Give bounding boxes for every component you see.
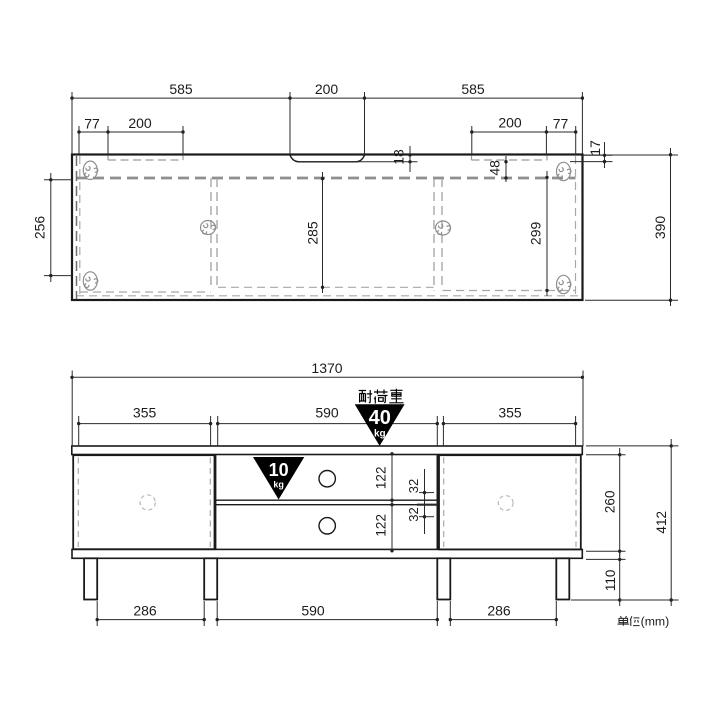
svg-text:1370: 1370 [311,360,342,376]
svg-text:256: 256 [32,216,48,240]
svg-text:355: 355 [498,404,522,420]
svg-text:355: 355 [133,404,157,420]
svg-text:110: 110 [603,570,618,592]
svg-text:200: 200 [315,81,339,97]
svg-text:590: 590 [315,405,339,421]
svg-text:285: 285 [305,221,321,245]
svg-text:412: 412 [654,511,669,534]
svg-text:200: 200 [128,115,152,131]
svg-text:77: 77 [84,116,100,132]
svg-text:122: 122 [374,514,389,537]
svg-text:kg: kg [273,480,284,490]
svg-text:10: 10 [269,460,289,480]
svg-text:286: 286 [487,602,511,618]
svg-text:200: 200 [498,115,522,131]
svg-text:32: 32 [406,479,421,493]
svg-text:18: 18 [391,149,407,165]
svg-text:40: 40 [369,407,391,429]
svg-text:590: 590 [301,602,325,618]
svg-text:(mm): (mm) [641,615,670,629]
svg-text:17: 17 [587,140,603,156]
svg-text:77: 77 [553,116,569,132]
svg-text:390: 390 [652,216,668,240]
svg-text:286: 286 [133,602,157,618]
svg-text:122: 122 [374,467,389,490]
svg-text:299: 299 [528,222,544,246]
svg-text:48: 48 [486,160,502,176]
svg-text:kg: kg [374,429,386,440]
svg-text:260: 260 [603,491,618,514]
svg-text:585: 585 [461,81,485,97]
svg-text:585: 585 [169,81,193,97]
svg-text:32: 32 [406,507,421,521]
